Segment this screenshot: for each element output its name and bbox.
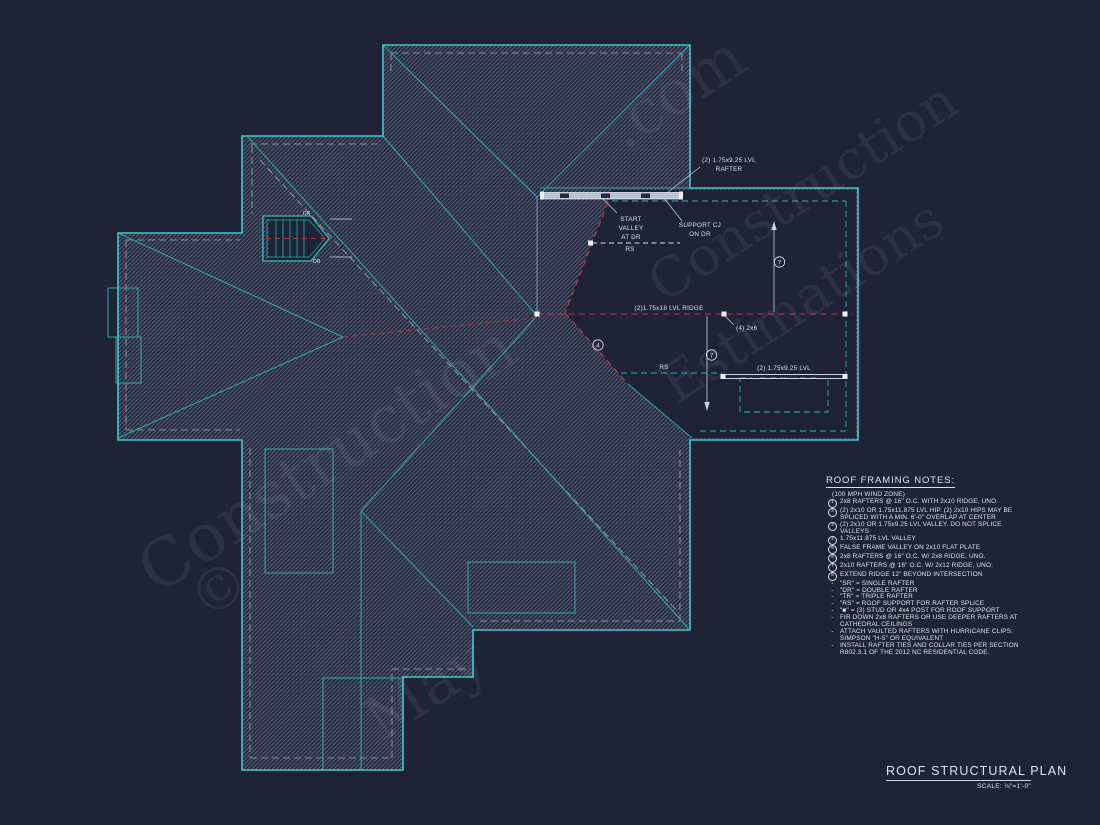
support-cj-label-1: SUPPORT CJ (679, 222, 721, 229)
circle-7-south: 7 (710, 352, 714, 359)
roof-body (118, 45, 858, 770)
note-item: -INSTALL RAFTER TIES AND COLLAR TIES PER… (828, 643, 1024, 657)
note-item: -ATTACH VAULTED RAFTERS WITH HURRICANE C… (828, 629, 1024, 643)
start-valley-label-3: AT DR (621, 234, 641, 241)
lvl-rafter-beam (540, 192, 683, 200)
rs-label-2: RS (659, 364, 668, 371)
note-item: 3(2) 2x10 OR 1.75x9.25 LVL VALLEY. DO NO… (828, 522, 1024, 536)
start-valley-label-1: START (620, 216, 641, 223)
notes-subtitle: (100 MPH WIND ZONE) (832, 491, 1024, 498)
start-valley-label-2: VALLEY (619, 225, 644, 232)
circle-7-north: 7 (778, 259, 782, 266)
note-item: 2(2) 2x10 OR 1.75x11.875 LVL HIP. (2) 2x… (828, 508, 1024, 522)
notes-list: 12x8 RAFTERS @ 16" O.C. WITH 2x10 RIDGE,… (826, 499, 1024, 657)
lvl-beam2-label: (2) 1.75x9.25 LVL (757, 365, 811, 372)
bay-dr-label-bottom: DR (313, 259, 321, 265)
sheet-scale: SCALE: ⅛"=1'-0" (886, 783, 1031, 790)
lvl-rafter-label-2: RAFTER (716, 166, 743, 173)
roof-structural-plan-sheet: DR DR (0, 0, 1100, 825)
note-item: -FIR DOWN 2x8 RAFTERS OR USE DEEPER RAFT… (828, 615, 1024, 629)
bay-dr-label-top: DR (303, 211, 311, 217)
title-block: ROOF STRUCTURAL PLAN SCALE: ⅛"=1'-0" (886, 764, 1031, 790)
plan-drawing: DR DR (0, 0, 1100, 825)
sheet-title: ROOF STRUCTURAL PLAN (886, 764, 1031, 781)
rs-label-1: RS (625, 246, 634, 253)
post-label: (4) 2x6 (736, 325, 758, 332)
circle-4: 4 (596, 342, 600, 349)
notes-title: ROOF FRAMING NOTES: (826, 475, 955, 488)
lvl-rafter-label-1: (2) 1.75x9.25 LVL (702, 157, 756, 164)
roof-framing-notes: ROOF FRAMING NOTES: (100 MPH WIND ZONE) … (826, 470, 1024, 657)
support-cj-label-2: ON DR (689, 231, 711, 238)
ridge-label: (2)1.75x18 LVL RIDGE (634, 305, 703, 312)
